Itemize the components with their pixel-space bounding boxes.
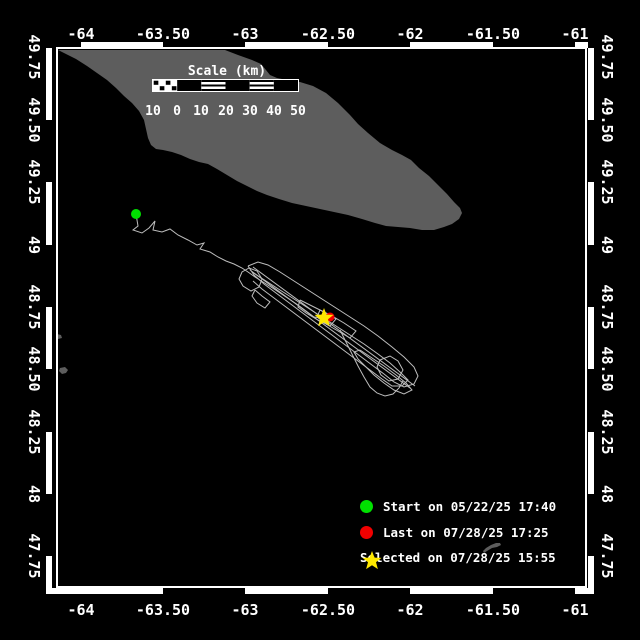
last-dot-icon xyxy=(360,526,373,539)
track-path[interactable] xyxy=(253,267,415,386)
track-path[interactable] xyxy=(250,270,410,388)
lon-tick-label-top: -62 xyxy=(396,25,423,43)
selected-star-icon xyxy=(360,550,384,572)
scalebar-check xyxy=(160,86,165,90)
lon-tick-label-top: -62.50 xyxy=(301,25,355,43)
lat-tick-label-left: 48 xyxy=(25,485,43,503)
zebra-segment xyxy=(588,494,594,556)
lon-tick-label-bottom: -63 xyxy=(231,601,258,619)
scalebar-tick-label: 50 xyxy=(290,104,306,119)
lon-tick-label-bottom: -61.50 xyxy=(466,601,520,619)
lat-tick-label-left: 48.75 xyxy=(25,284,43,329)
scalebar-title: Scale (km) xyxy=(188,64,266,79)
lon-tick-label-top: -63 xyxy=(231,25,258,43)
lat-tick-label-left: 49.50 xyxy=(25,97,43,142)
track-map-window: -64-64-63.50-63.50-63-63-62.50-62.50-62-… xyxy=(0,0,640,640)
lon-tick-label-top: -61 xyxy=(561,25,588,43)
scalebar-stripe xyxy=(201,80,225,82)
lat-tick-label-left: 47.75 xyxy=(25,533,43,578)
lat-tick-label-right: 48.75 xyxy=(598,284,616,329)
zebra-segment xyxy=(46,494,52,556)
lat-tick-label-left: 48.50 xyxy=(25,346,43,391)
scalebar-tick-label: 0 xyxy=(173,104,181,119)
scalebar-tick-label: 10 xyxy=(145,104,161,119)
zebra-segment xyxy=(46,369,52,432)
lat-tick-label-right: 48.50 xyxy=(598,346,616,391)
lat-tick-label-right: 48 xyxy=(598,485,616,503)
lat-tick-label-right: 49.25 xyxy=(598,159,616,204)
lat-tick-label-left: 48.25 xyxy=(25,409,43,454)
zebra-segment xyxy=(588,245,594,307)
lat-tick-label-right: 48.25 xyxy=(598,409,616,454)
scalebar-tick-label: 20 xyxy=(218,104,234,119)
lon-tick-label-bottom: -63.50 xyxy=(136,601,190,619)
lat-tick-label-right: 49.75 xyxy=(598,34,616,79)
lat-tick-label-right: 47.75 xyxy=(598,533,616,578)
track-path[interactable] xyxy=(377,356,403,381)
zebra-segment xyxy=(46,120,52,182)
scalebar-layer xyxy=(152,79,299,92)
scalebar-stripe xyxy=(250,85,274,87)
lat-tick-label-left: 49 xyxy=(25,236,43,254)
legend-label: Start on 05/22/25 17:40 xyxy=(383,499,556,514)
lon-tick-label-bottom: -64 xyxy=(67,601,94,619)
lon-tick-label-bottom: -62 xyxy=(396,601,423,619)
zebra-segment xyxy=(588,369,594,432)
lat-tick-label-right: 49 xyxy=(598,236,616,254)
lon-tick-label-top: -61.50 xyxy=(466,25,520,43)
marker-layer[interactable] xyxy=(131,209,335,326)
legend-item-selected: Selected on 07/28/25 15:55 xyxy=(360,550,556,565)
scalebar-check xyxy=(166,81,171,85)
track-layer[interactable] xyxy=(133,214,418,396)
scalebar-stripe xyxy=(201,89,225,91)
start-dot-icon xyxy=(360,500,373,513)
zebra-segment xyxy=(46,245,52,307)
scalebar-tick-label: 40 xyxy=(266,104,282,119)
lon-tick-label-top: -64 xyxy=(67,25,94,43)
legend-label: Selected on 07/28/25 15:55 xyxy=(360,550,556,565)
zebra-segment xyxy=(588,42,594,48)
zebra-segment xyxy=(493,588,575,594)
scalebar-segment xyxy=(226,80,250,91)
map-canvas[interactable] xyxy=(0,0,640,640)
scalebar-check xyxy=(172,86,177,90)
start-position-marker[interactable] xyxy=(131,209,141,219)
lon-tick-label-top: -63.50 xyxy=(136,25,190,43)
zebra-segment xyxy=(588,120,594,182)
zebra-segment xyxy=(163,588,245,594)
scalebar-stripe xyxy=(250,80,274,82)
scalebar-tick-label: 30 xyxy=(242,104,258,119)
scalebar-check xyxy=(154,81,159,85)
legend-label: Last on 07/28/25 17:25 xyxy=(383,525,549,540)
scalebar-segment xyxy=(177,80,201,91)
scalebar-segment xyxy=(274,80,298,91)
scalebar-stripe xyxy=(201,85,225,87)
legend-item-last: Last on 07/28/25 17:25 xyxy=(360,525,549,540)
lat-tick-label-left: 49.25 xyxy=(25,159,43,204)
lon-tick-label-bottom: -62.50 xyxy=(301,601,355,619)
zebra-segment xyxy=(328,588,410,594)
scalebar-tick-label: 10 xyxy=(193,104,209,119)
lat-tick-label-right: 49.50 xyxy=(598,97,616,142)
lon-tick-label-bottom: -61 xyxy=(561,601,588,619)
legend-item-start: Start on 05/22/25 17:40 xyxy=(360,499,556,514)
islet-shape xyxy=(59,367,68,374)
scalebar-stripe xyxy=(250,89,274,91)
lat-tick-label-left: 49.75 xyxy=(25,34,43,79)
